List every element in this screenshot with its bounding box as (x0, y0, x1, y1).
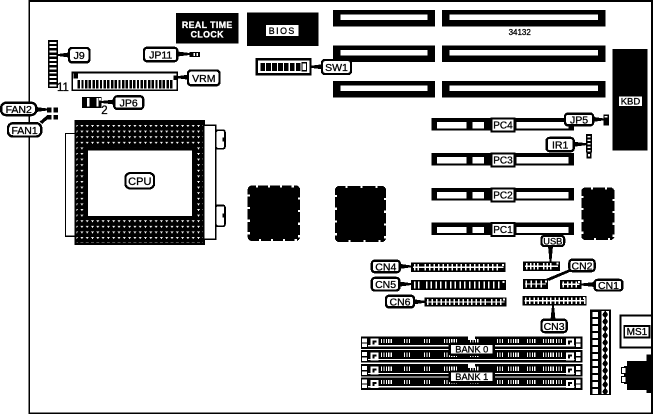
svg-text:REAL TIME: REAL TIME (182, 20, 233, 30)
svg-text:MS1: MS1 (627, 327, 648, 338)
svg-text:SW1: SW1 (325, 62, 348, 74)
svg-text:2: 2 (101, 105, 107, 117)
svg-text:USB: USB (543, 236, 562, 246)
svg-text:CPU: CPU (128, 176, 151, 188)
svg-text:BANK 1: BANK 1 (455, 372, 488, 382)
svg-text:11: 11 (57, 82, 69, 94)
svg-text:JP5: JP5 (570, 114, 588, 126)
svg-text:KBD: KBD (621, 96, 641, 107)
svg-text:PC2: PC2 (493, 191, 513, 202)
svg-text:CN1: CN1 (598, 280, 619, 292)
svg-text:CN4: CN4 (375, 261, 396, 273)
svg-text:VRM: VRM (192, 73, 215, 85)
svg-text:BANK 0: BANK 0 (455, 344, 488, 354)
svg-text:IR1: IR1 (552, 140, 569, 152)
svg-text:CN2: CN2 (571, 260, 592, 272)
svg-text:CN5: CN5 (375, 279, 396, 291)
svg-text:BIOS: BIOS (269, 26, 296, 36)
svg-text:PC3: PC3 (493, 156, 513, 167)
svg-text:J9: J9 (74, 50, 85, 62)
svg-text:FAN2: FAN2 (6, 104, 32, 116)
svg-text:PC1: PC1 (493, 225, 513, 236)
svg-text:34132: 34132 (509, 28, 532, 37)
svg-text:PC4: PC4 (493, 121, 513, 132)
svg-text:CN3: CN3 (544, 321, 565, 333)
svg-text:CLOCK: CLOCK (191, 30, 225, 40)
svg-text:JP6: JP6 (120, 98, 138, 110)
svg-text:CN6: CN6 (389, 297, 410, 309)
svg-text:JP11: JP11 (149, 50, 172, 62)
svg-text:FAN1: FAN1 (11, 125, 37, 137)
